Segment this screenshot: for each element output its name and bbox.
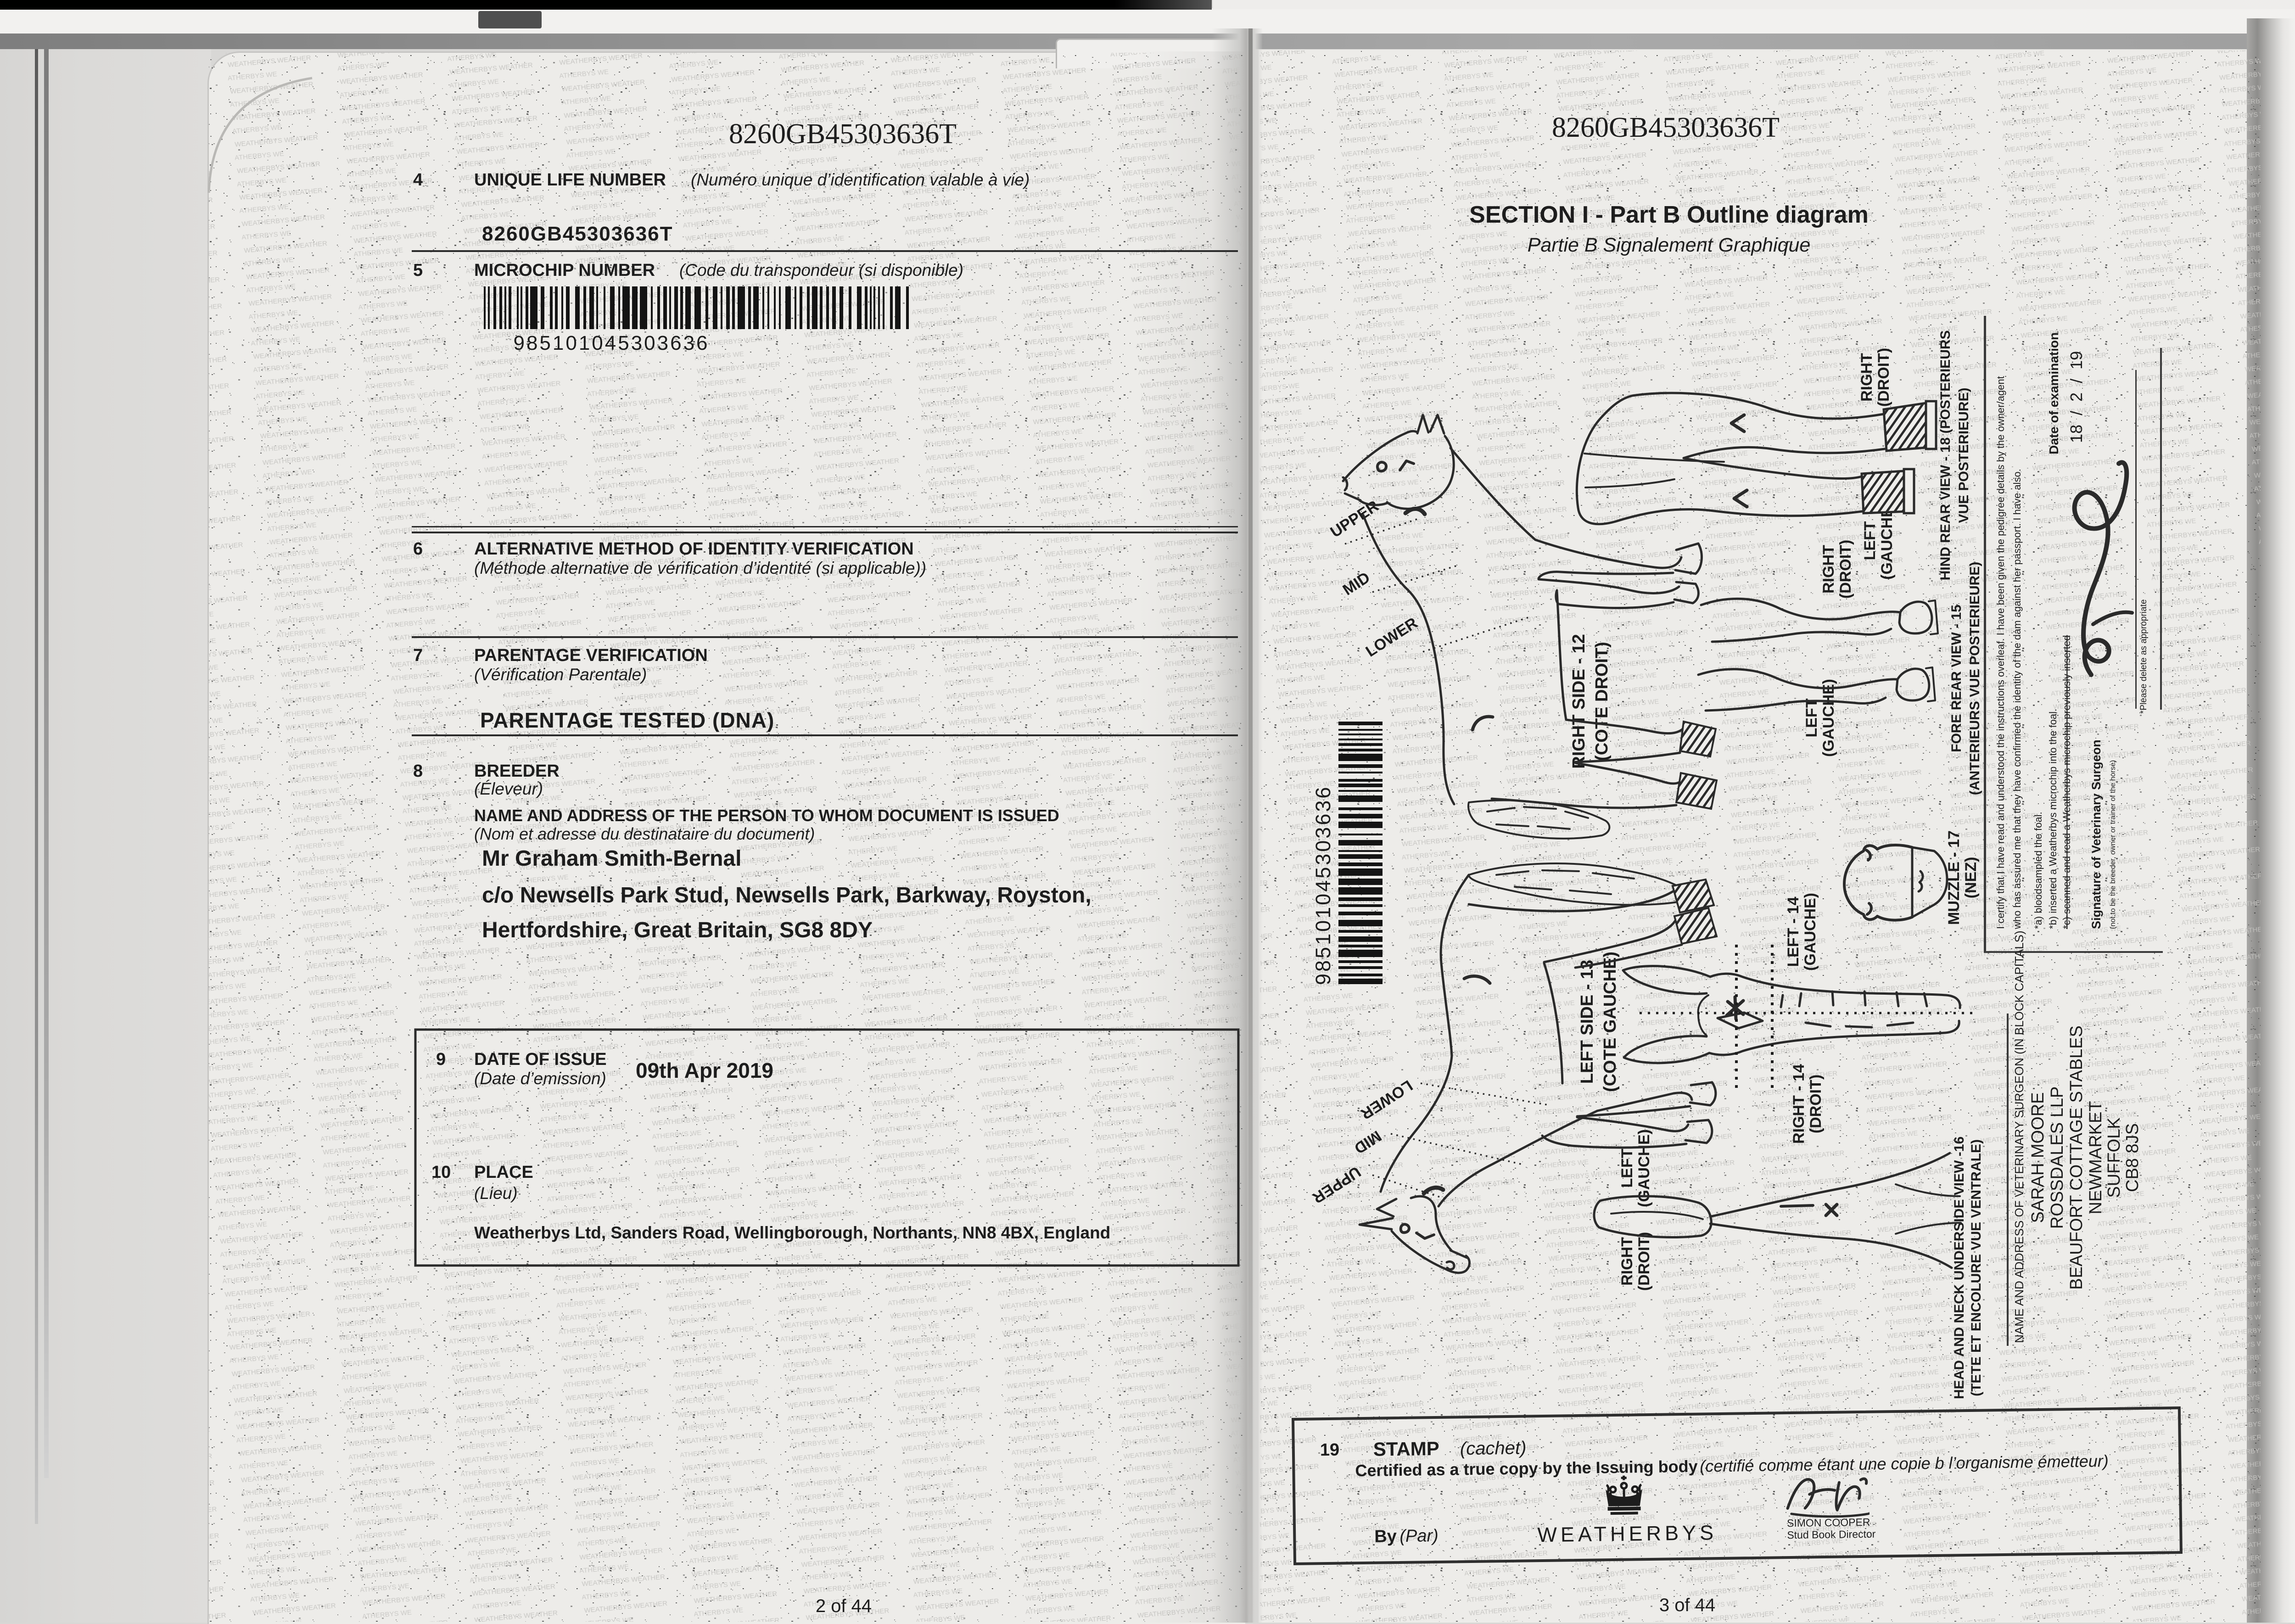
svg-text:By: By: [1374, 1527, 1397, 1546]
svg-text:7: 7: [413, 646, 423, 665]
svg-text:Weatherbys Ltd, Sanders Road,: Weatherbys Ltd, Sanders Road, Wellingbor…: [474, 1223, 1110, 1242]
svg-text:(COTE GAUCHE): (COTE GAUCHE): [1601, 952, 1620, 1092]
svg-text:SIMON COOPER: SIMON COOPER: [1787, 1516, 1870, 1529]
svg-text:SECTION I - Part B Outline dia: SECTION I - Part B Outline diagram: [1469, 202, 1869, 228]
svg-text:(DROIT): (DROIT): [1837, 540, 1854, 599]
svg-text:Signature of Veterinary Surgeo: Signature of Veterinary Surgeon: [2089, 739, 2103, 929]
svg-text:PARENTAGE TESTED (DNA): PARENTAGE TESTED (DNA): [480, 708, 774, 732]
svg-text:(DROIT): (DROIT): [1635, 1232, 1653, 1291]
svg-text:(Code du transpondeur (si disp: (Code du transpondeur (si disponible): [679, 261, 963, 280]
svg-text:8: 8: [413, 762, 423, 781]
svg-text:Mr Graham Smith-Bernal: Mr Graham Smith-Bernal: [482, 846, 741, 871]
svg-text:RIGHT: RIGHT: [1618, 1237, 1636, 1286]
svg-text:(Lieu): (Lieu): [474, 1184, 518, 1203]
svg-text:(Vérification Parentale): (Vérification Parentale): [474, 665, 647, 684]
svg-text:9: 9: [436, 1050, 446, 1069]
svg-text:PARENTAGE VERIFICATION: PARENTAGE VERIFICATION: [474, 646, 708, 665]
svg-text:8260GB45303636T: 8260GB45303636T: [729, 118, 957, 150]
svg-text:RIGHT: RIGHT: [1858, 353, 1875, 402]
svg-text:985101045303636: 985101045303636: [1311, 785, 1335, 985]
svg-text:I certify that I have read and: I certify that I have read and understoo…: [1995, 376, 2006, 929]
svg-text:PLACE: PLACE: [474, 1163, 533, 1182]
svg-text:09th Apr 2019: 09th Apr 2019: [636, 1058, 773, 1082]
svg-text:(Numéro unique d’identificatio: (Numéro unique d’identification valable …: [691, 170, 1030, 189]
svg-text:(DROIT): (DROIT): [1807, 1075, 1825, 1133]
svg-text:(Nom et adresse du destinatair: (Nom et adresse du destinataire du docum…: [474, 824, 815, 843]
svg-text:(cachet): (cachet): [1460, 1438, 1527, 1459]
svg-text:2 of 44: 2 of 44: [816, 1596, 872, 1616]
svg-text:LEFT: LEFT: [1861, 521, 1879, 560]
svg-text:5: 5: [413, 261, 423, 280]
svg-text:HIND REAR VIEW - 18 (POSTERIEU: HIND REAR VIEW - 18 (POSTERIEURS: [1938, 330, 1953, 580]
svg-text:(ANTERIEURS VUE POSTERIEURE): (ANTERIEURS VUE POSTERIEURE): [1967, 562, 1982, 795]
svg-text:(TETE ET ENCOLURE VUE VENTRALE: (TETE ET ENCOLURE VUE VENTRALE): [1969, 1139, 1984, 1396]
svg-text:Stud Book Director: Stud Book Director: [1787, 1528, 1876, 1541]
svg-text:Hertfordshire, Great Britain,: Hertfordshire, Great Britain, SG8 8DY: [482, 918, 873, 942]
svg-text:STAMP: STAMP: [1373, 1438, 1439, 1460]
svg-text:4: 4: [413, 170, 423, 190]
svg-text:RIGHT - 14: RIGHT - 14: [1790, 1064, 1808, 1144]
svg-text:ROSSDALES LLP: ROSSDALES LLP: [2048, 1086, 2067, 1229]
svg-text:WEATHERBYS: WEATHERBYS: [1537, 1521, 1717, 1546]
svg-text:18 / 2 / 19: 18 / 2 / 19: [2067, 351, 2086, 443]
svg-text:10: 10: [431, 1163, 451, 1182]
svg-text:SARAH MOORE: SARAH MOORE: [2028, 1092, 2048, 1223]
svg-text:*Please delete as appropriate: *Please delete as appropriate: [2139, 599, 2149, 714]
svg-text:Date of examination: Date of examination: [2047, 332, 2061, 454]
svg-text:(Par): (Par): [1399, 1526, 1439, 1546]
svg-text:NEWMARKET: NEWMARKET: [2086, 1101, 2105, 1215]
svg-text:3 of 44: 3 of 44: [1659, 1595, 1715, 1615]
svg-text:UNIQUE LIFE NUMBER: UNIQUE LIFE NUMBER: [474, 170, 666, 190]
svg-text:NAME AND ADDRESS OF THE PERSON: NAME AND ADDRESS OF THE PERSON TO WHOM D…: [474, 806, 1059, 825]
svg-text:ALTERNATIVE METHOD OF IDENTITY: ALTERNATIVE METHOD OF IDENTITY VERIFICAT…: [474, 539, 914, 559]
svg-text:BREEDER: BREEDER: [474, 762, 560, 781]
svg-text:(NEZ): (NEZ): [1962, 857, 1980, 899]
svg-text:VUE POSTERIEURE): VUE POSTERIEURE): [1956, 387, 1971, 523]
svg-text:Partie B Signalement Graphique: Partie B Signalement Graphique: [1528, 234, 1811, 256]
svg-text:RIGHT: RIGHT: [1820, 545, 1837, 594]
svg-text:LEFT SIDE - 13: LEFT SIDE - 13: [1578, 960, 1597, 1084]
svg-text:6: 6: [413, 539, 423, 559]
svg-text:*b) inserted a Weatherbys micr: *b) inserted a Weatherbys microchip into…: [2047, 709, 2059, 929]
svg-text:NAME AND ADDRESS OF VETERINARY: NAME AND ADDRESS OF VETERINARY SURGEON (…: [2012, 930, 2026, 1343]
svg-text:*c) scanned and read a Weather: *c) scanned and read a Weatherbys microc…: [2061, 635, 2072, 929]
svg-text:*a) bloodsampled the foal.: *a) bloodsampled the foal.: [2032, 812, 2044, 929]
svg-text:(Méthode alternative de vérifi: (Méthode alternative de vérification d’i…: [474, 559, 926, 577]
svg-text:(Éleveur): (Éleveur): [474, 779, 543, 798]
svg-text:8260GB45303636T: 8260GB45303636T: [1552, 112, 1780, 143]
svg-text:8260GB45303636T: 8260GB45303636T: [482, 223, 673, 245]
svg-text:LEFT: LEFT: [1803, 698, 1820, 737]
svg-text:who has assured me that they h: who has assured me that they have confir…: [2011, 469, 2023, 930]
svg-text:LEFT: LEFT: [1618, 1148, 1636, 1187]
svg-text:c/o Newsells Park Stud, Newsel: c/o Newsells Park Stud, Newsells Park, B…: [482, 883, 1092, 907]
svg-text:MICROCHIP NUMBER: MICROCHIP NUMBER: [474, 261, 655, 280]
svg-text:CB8 8JS: CB8 8JS: [2123, 1123, 2142, 1192]
svg-text:BEAUFORT COTTAGE STABLES: BEAUFORT COTTAGE STABLES: [2067, 1025, 2086, 1290]
svg-text:LEFT - 14: LEFT - 14: [1785, 896, 1802, 967]
svg-text:SUFFOLK: SUFFOLK: [2105, 1117, 2124, 1198]
svg-text:19: 19: [1320, 1440, 1340, 1460]
svg-text:985101045303636: 985101045303636: [513, 332, 709, 354]
svg-text:HEAD AND NECK UNDERSIDE VIEW -: HEAD AND NECK UNDERSIDE VIEW -16: [1952, 1137, 1967, 1399]
svg-text:(Date d’emission): (Date d’emission): [474, 1069, 606, 1088]
svg-text:(DROIT): (DROIT): [1875, 348, 1892, 407]
svg-text:(COTE DROIT): (COTE DROIT): [1592, 642, 1612, 761]
svg-text:(not to be the breeder, owner: (not to be the breeder, owner or trainer…: [2109, 760, 2117, 929]
svg-text:(GAUCHE): (GAUCHE): [1820, 679, 1837, 757]
svg-text:(GAUCHE): (GAUCHE): [1802, 893, 1819, 971]
svg-text:FORE REAR VIEW - 15: FORE REAR VIEW - 15: [1949, 605, 1964, 752]
svg-text:RIGHT SIDE - 12: RIGHT SIDE - 12: [1569, 634, 1589, 769]
svg-text:DATE OF ISSUE: DATE OF ISSUE: [474, 1050, 607, 1069]
